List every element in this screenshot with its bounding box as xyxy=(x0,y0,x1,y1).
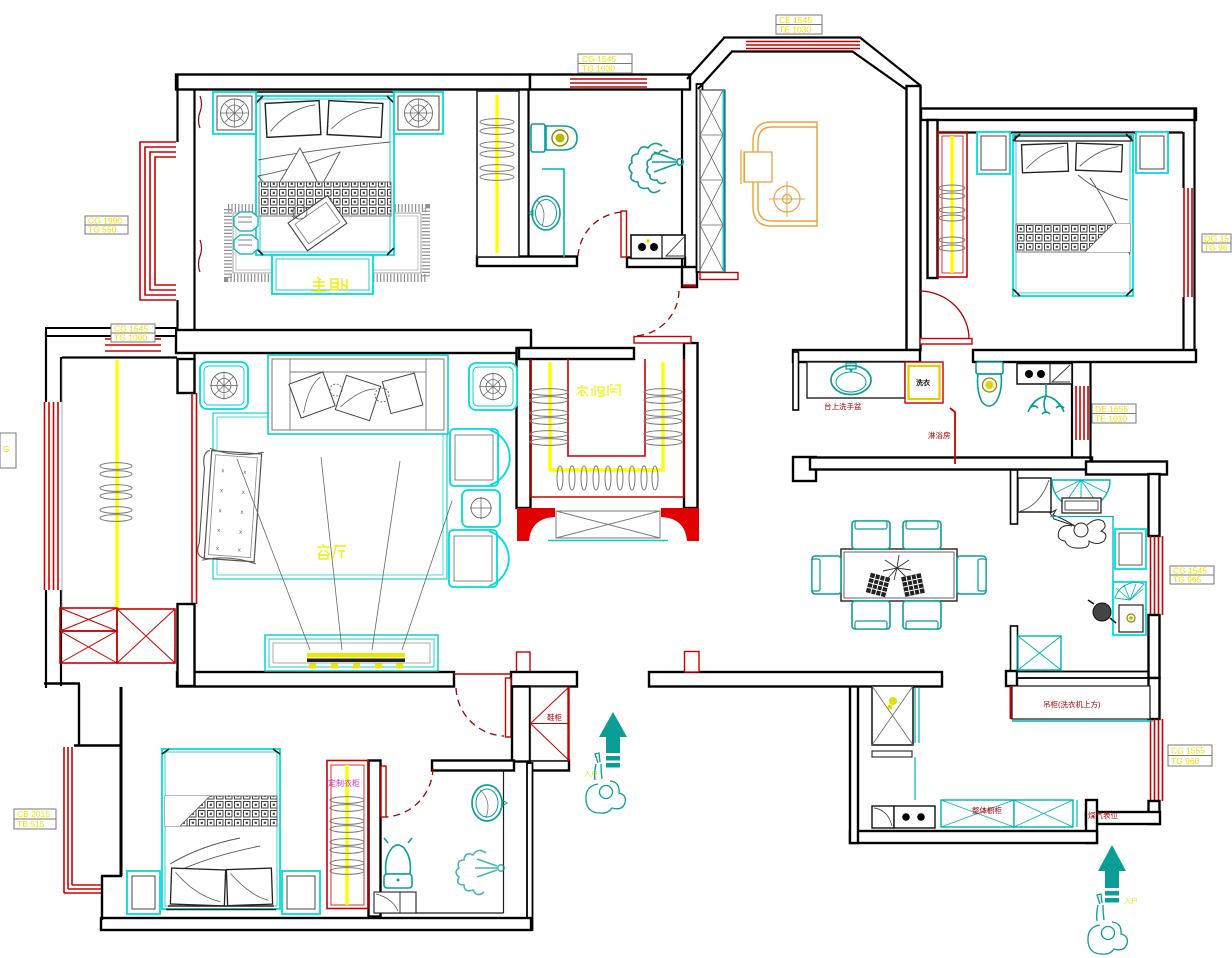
svg-text:入户: 入户 xyxy=(1124,896,1138,905)
svg-text:TG 965: TG 965 xyxy=(1173,575,1202,585)
svg-text:G: G xyxy=(3,444,10,454)
svg-text:煤气表位: 煤气表位 xyxy=(1088,810,1118,820)
svg-text:x: x xyxy=(239,530,242,536)
svg-text:淋浴房: 淋浴房 xyxy=(928,430,951,440)
svg-text:TG 550: TG 550 xyxy=(88,225,117,235)
svg-text:x: x xyxy=(242,490,245,496)
svg-text:x: x xyxy=(238,548,241,554)
svg-text:x: x xyxy=(216,546,219,552)
svg-text:x: x xyxy=(217,528,220,534)
svg-text:入户: 入户 xyxy=(584,769,598,778)
svg-text:洗衣: 洗衣 xyxy=(916,378,931,387)
svg-text:x: x xyxy=(220,488,223,494)
svg-text:x: x xyxy=(221,468,224,474)
svg-text:整体橱柜: 整体橱柜 xyxy=(972,805,1002,815)
svg-text:TE 1010: TE 1010 xyxy=(1095,414,1127,424)
svg-text:台上洗手盆: 台上洗手盆 xyxy=(824,401,862,411)
svg-text:TG 96: TG 96 xyxy=(1204,243,1228,253)
svg-text:CG 1545: CG 1545 xyxy=(582,54,616,64)
svg-text:x: x xyxy=(240,510,243,516)
svg-text:DE 1655: DE 1655 xyxy=(1095,404,1128,414)
svg-text:CB 2015: CB 2015 xyxy=(17,809,50,819)
svg-text:TG 960: TG 960 xyxy=(1171,756,1200,766)
svg-text:TG 1030: TG 1030 xyxy=(582,64,615,74)
svg-text:CG 1555: CG 1555 xyxy=(1171,746,1205,756)
svg-text:TG 1000: TG 1000 xyxy=(114,333,147,343)
svg-text:x: x xyxy=(218,508,221,514)
svg-text:吊柜(洗衣机上方): 吊柜(洗衣机上方) xyxy=(1043,699,1101,709)
svg-text:TB 515: TB 515 xyxy=(17,819,45,829)
svg-text:鞋柜: 鞋柜 xyxy=(547,712,562,722)
svg-text:TE 1030: TE 1030 xyxy=(779,25,811,35)
svg-text:CE 1545: CE 1545 xyxy=(779,15,812,25)
svg-text:定制衣柜: 定制衣柜 xyxy=(328,778,360,788)
